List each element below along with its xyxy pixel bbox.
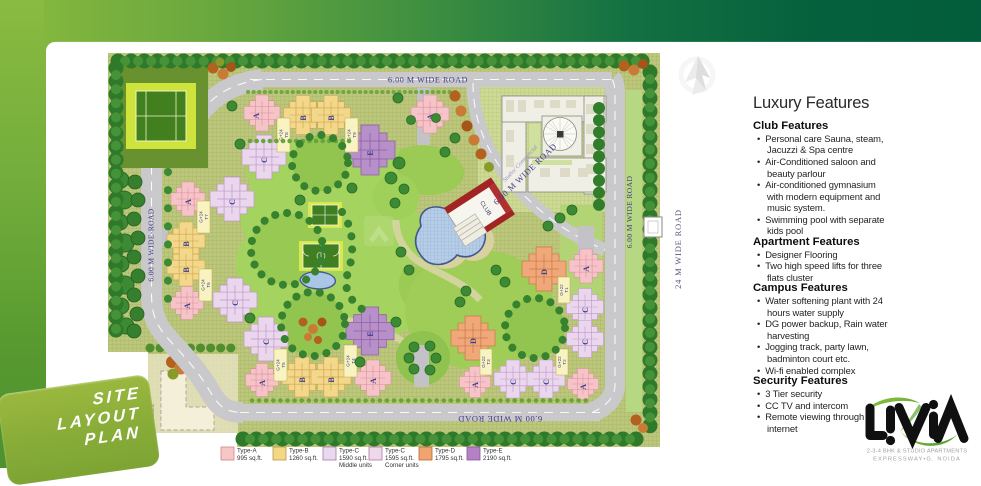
svg-text:6.00 M WIDE-ROAD: 6.00 M WIDE-ROAD: [147, 208, 156, 281]
svg-text:B: B: [327, 115, 336, 121]
svg-text:2190 sq.ft.: 2190 sq.ft.: [483, 455, 512, 462]
svg-text:D: D: [469, 338, 478, 344]
svg-text:1795 sq.ft.: 1795 sq.ft.: [435, 455, 464, 462]
svg-text:A: A: [582, 266, 591, 272]
svg-text:B: B: [182, 267, 191, 273]
svg-text:2-3-4 BHK & STUDIO APARTMENTS: 2-3-4 BHK & STUDIO APARTMENTS: [867, 449, 967, 455]
svg-text:C: C: [262, 339, 271, 345]
svg-text:6.00 M WIDE ROAD: 6.00 M WIDE ROAD: [458, 414, 543, 424]
svg-text:A: A: [252, 113, 261, 119]
svg-text:Type-D: Type-D: [435, 448, 455, 455]
svg-text:A: A: [471, 382, 480, 388]
svg-text:A: A: [369, 378, 378, 384]
svg-text:Corner units: Corner units: [385, 462, 419, 468]
svg-text:E: E: [366, 331, 375, 336]
svg-text:Type-C: Type-C: [385, 448, 405, 455]
svg-text:C: C: [581, 339, 590, 345]
svg-text:B: B: [298, 377, 307, 383]
svg-text:C: C: [542, 379, 551, 385]
svg-text:G+24: G+24: [346, 355, 351, 367]
svg-text:A: A: [183, 303, 192, 309]
svg-text:T6: T6: [206, 282, 211, 288]
svg-text:Type-B: Type-B: [289, 448, 309, 455]
svg-text:G+24: G+24: [201, 279, 206, 291]
svg-text:Type-A: Type-A: [237, 448, 257, 455]
svg-text:6.00 M WIDE ROAD: 6.00 M WIDE ROAD: [625, 176, 634, 249]
svg-text:D: D: [540, 269, 549, 275]
svg-text:995 sq.ft.: 995 sq.ft.: [237, 455, 263, 462]
svg-text:T8: T8: [284, 132, 289, 138]
svg-text:B: B: [299, 115, 308, 121]
svg-text:C: C: [228, 199, 237, 205]
svg-text:24 M WIDE ROAD: 24 M WIDE ROAD: [673, 209, 683, 289]
svg-text:A: A: [579, 384, 588, 390]
svg-text:T1: T1: [564, 287, 569, 293]
svg-text:G+24: G+24: [199, 211, 204, 223]
svg-text:G+24: G+24: [276, 359, 281, 371]
svg-text:C: C: [509, 379, 518, 385]
svg-text:T5: T5: [281, 362, 286, 368]
svg-text:C: C: [260, 157, 269, 163]
svg-text:1590 sq.ft.: 1590 sq.ft.: [339, 455, 368, 462]
svg-text:1595 sq.ft.: 1595 sq.ft.: [385, 455, 414, 462]
svg-text:A: A: [184, 199, 193, 205]
svg-text:1260 sq.ft.: 1260 sq.ft.: [289, 455, 318, 462]
svg-text:T9: T9: [352, 132, 357, 138]
svg-text:E: E: [366, 150, 375, 155]
svg-text:T7: T7: [204, 214, 209, 220]
svg-text:B: B: [182, 241, 191, 247]
svg-text:T3: T3: [486, 359, 491, 365]
svg-text:6.00 M WIDE ROAD: 6.00 M WIDE ROAD: [388, 76, 468, 85]
svg-text:Type-E: Type-E: [483, 448, 503, 455]
svg-text:C: C: [581, 307, 590, 313]
svg-text:T2: T2: [562, 359, 567, 365]
svg-text:C: C: [231, 300, 240, 306]
svg-text:B: B: [327, 377, 336, 383]
svg-text:Type-C: Type-C: [339, 448, 359, 455]
svg-text:Middle units: Middle units: [339, 462, 372, 468]
svg-text:EXPRESSWAY•G. NOIDA: EXPRESSWAY•G. NOIDA: [873, 457, 961, 463]
svg-text:A: A: [258, 380, 267, 386]
